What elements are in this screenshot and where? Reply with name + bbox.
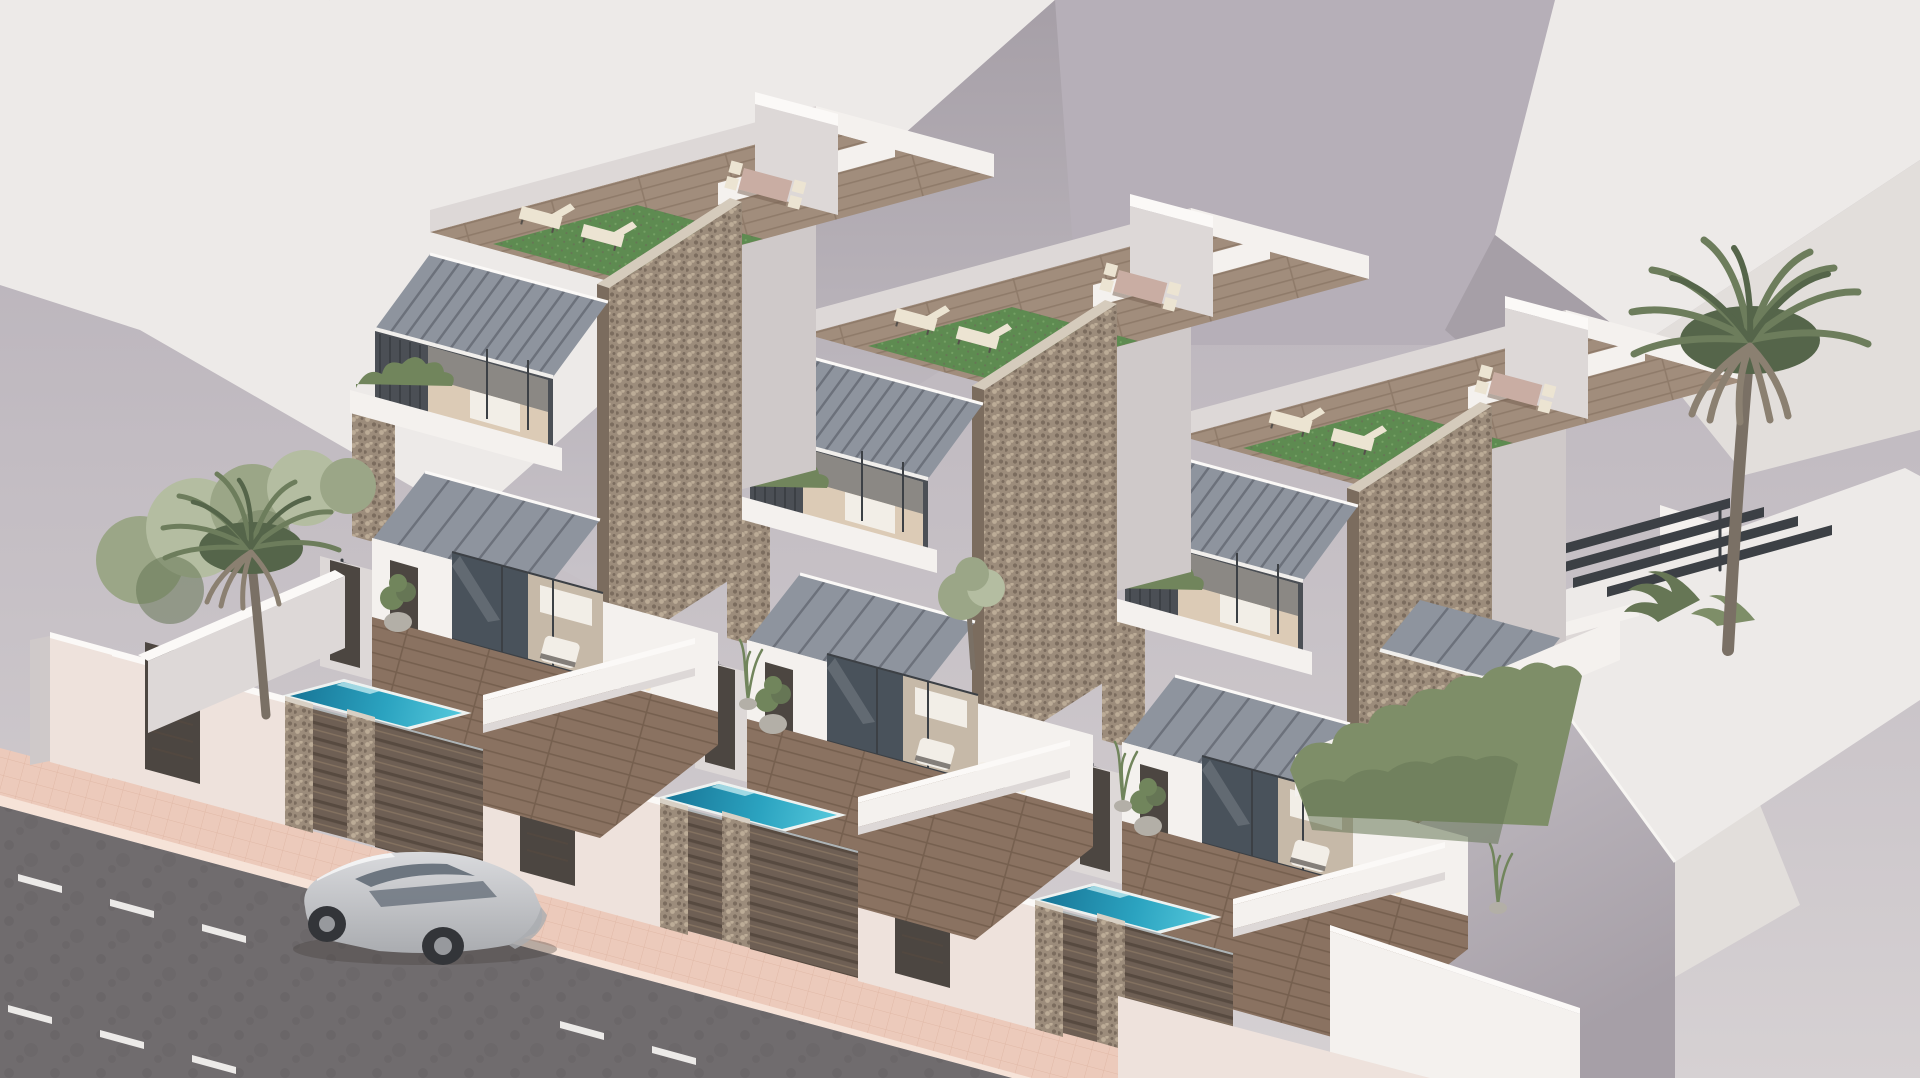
architectural-render	[0, 0, 1920, 1078]
render-viewport	[0, 0, 1920, 1078]
